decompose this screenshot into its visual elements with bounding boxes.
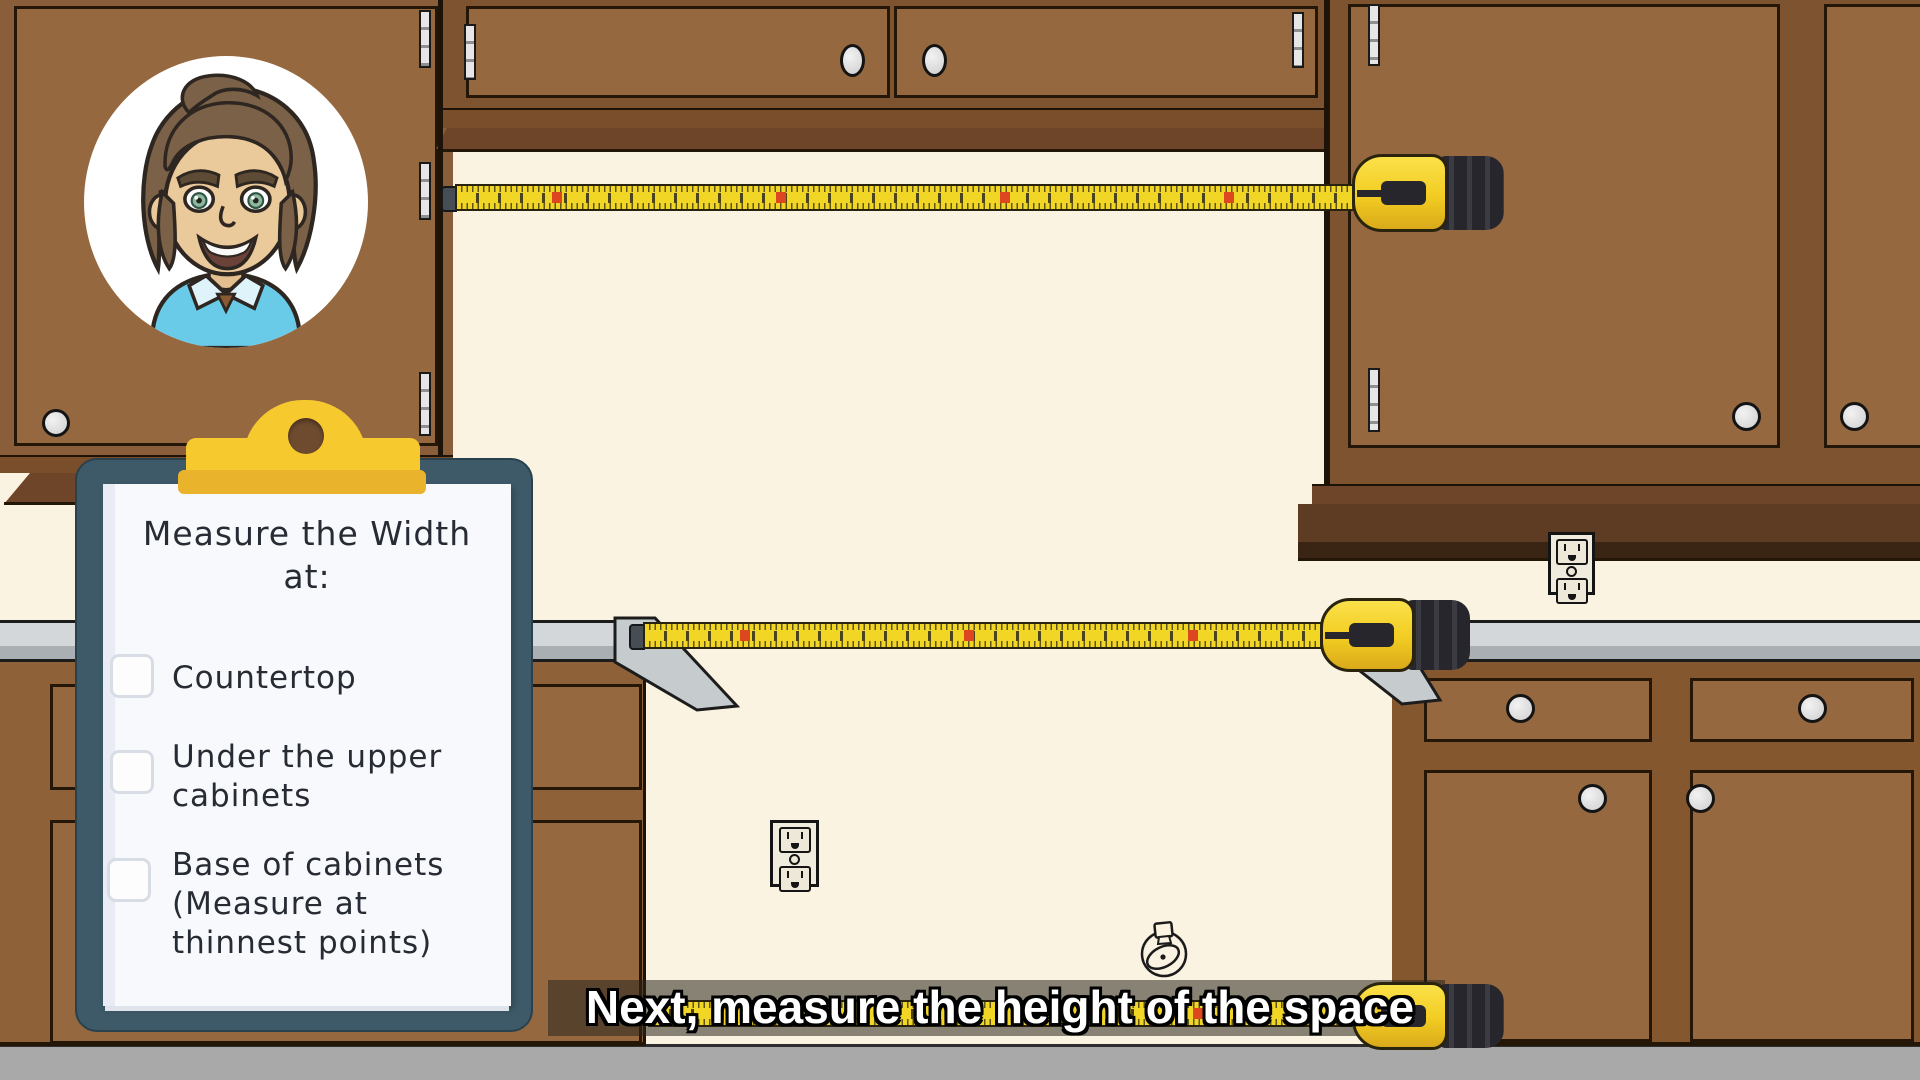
hinge-icon <box>419 162 431 220</box>
hinge-icon <box>1368 368 1380 432</box>
outlet-receptacle <box>1556 539 1588 565</box>
tape-measure-case <box>1320 598 1470 672</box>
outlet-screw <box>1566 566 1577 577</box>
door-knob <box>922 44 947 77</box>
outlet-receptacle <box>779 827 811 853</box>
tape-exit-slot <box>1325 632 1354 639</box>
tape-exit-slot <box>1357 190 1386 197</box>
cabinet-molding <box>1298 504 1920 542</box>
cabinet-molding <box>435 128 1338 151</box>
countertop-right-edge <box>1392 646 1920 662</box>
tape-measure-blade <box>455 184 1365 211</box>
outlet-receptacle <box>1556 578 1588 604</box>
wall-outlet-icon <box>770 820 819 887</box>
label-line: cabinets <box>172 777 502 816</box>
cabinet-molding-edge <box>435 149 1338 152</box>
cabinet-bottom-rail <box>443 108 1330 128</box>
cabinet-door <box>1690 770 1914 1042</box>
gas-valve-line-icon <box>1134 920 1192 982</box>
hinge-icon <box>1292 12 1304 68</box>
door-knob <box>42 409 70 437</box>
clipboard-clip-hole <box>288 418 324 454</box>
wall-outlet-icon <box>1548 532 1595 595</box>
cabinet-door <box>1824 4 1920 448</box>
drawer-knob <box>1798 694 1827 723</box>
label-line: (Measure at <box>172 885 512 924</box>
subtitle-text: Next, measure the height of the space <box>500 976 1500 1038</box>
door-knob <box>840 44 865 77</box>
cabinet-seam <box>438 0 443 457</box>
checklist-title-line1: Measure the Width <box>103 512 511 555</box>
checklist-title-line2: at: <box>103 555 511 598</box>
cabinet-door <box>894 6 1318 98</box>
door-knob <box>1732 402 1761 431</box>
hinge-icon <box>464 24 476 80</box>
checklist-item-label: Under the upper cabinets <box>172 738 502 816</box>
cabinet-molding-edge <box>1298 558 1920 561</box>
cabinet-seam <box>1324 0 1330 484</box>
upper-cabinet-right <box>1330 0 1920 484</box>
checkbox-base-of-cabinets[interactable] <box>107 858 151 902</box>
tape-lock-button <box>1381 181 1427 206</box>
clipboard-clip-strip <box>178 470 426 494</box>
checklist-item-label: Base of cabinets (Measure at thinnest po… <box>172 846 512 963</box>
hinge-icon <box>419 372 431 436</box>
checklist-title: Measure the Width at: <box>103 512 511 598</box>
door-knob <box>1840 402 1869 431</box>
hinge-icon <box>419 10 431 68</box>
label-line: Under the upper <box>172 738 502 777</box>
upper-cabinet-middle <box>443 0 1330 108</box>
door-knob <box>1686 784 1715 813</box>
toe-kick-line <box>0 1042 646 1046</box>
outlet-screw <box>789 854 800 865</box>
cabinet-bottom-rail <box>1312 484 1920 504</box>
tape-measure-blade <box>643 622 1343 649</box>
hinge-icon <box>1368 4 1380 66</box>
door-knob <box>1578 784 1607 813</box>
countertop-right <box>1392 620 1920 646</box>
label-line: Base of cabinets <box>172 846 512 885</box>
kitchen-scene: Measure the Width at: Countertop Under t… <box>0 0 1920 1080</box>
cabinet-door <box>466 6 890 98</box>
tape-measure-case <box>1352 154 1504 232</box>
outlet-receptacle <box>779 866 811 892</box>
label-line: thinnest points) <box>172 924 512 963</box>
floor <box>0 1044 1920 1080</box>
checkbox-under-upper-cabinets[interactable] <box>110 750 154 794</box>
tape-lock-button <box>1349 623 1394 647</box>
checkbox-countertop[interactable] <box>110 654 154 698</box>
checklist-item-label: Countertop <box>172 660 502 696</box>
drawer-knob <box>1506 694 1535 723</box>
presenter-avatar <box>84 56 368 348</box>
